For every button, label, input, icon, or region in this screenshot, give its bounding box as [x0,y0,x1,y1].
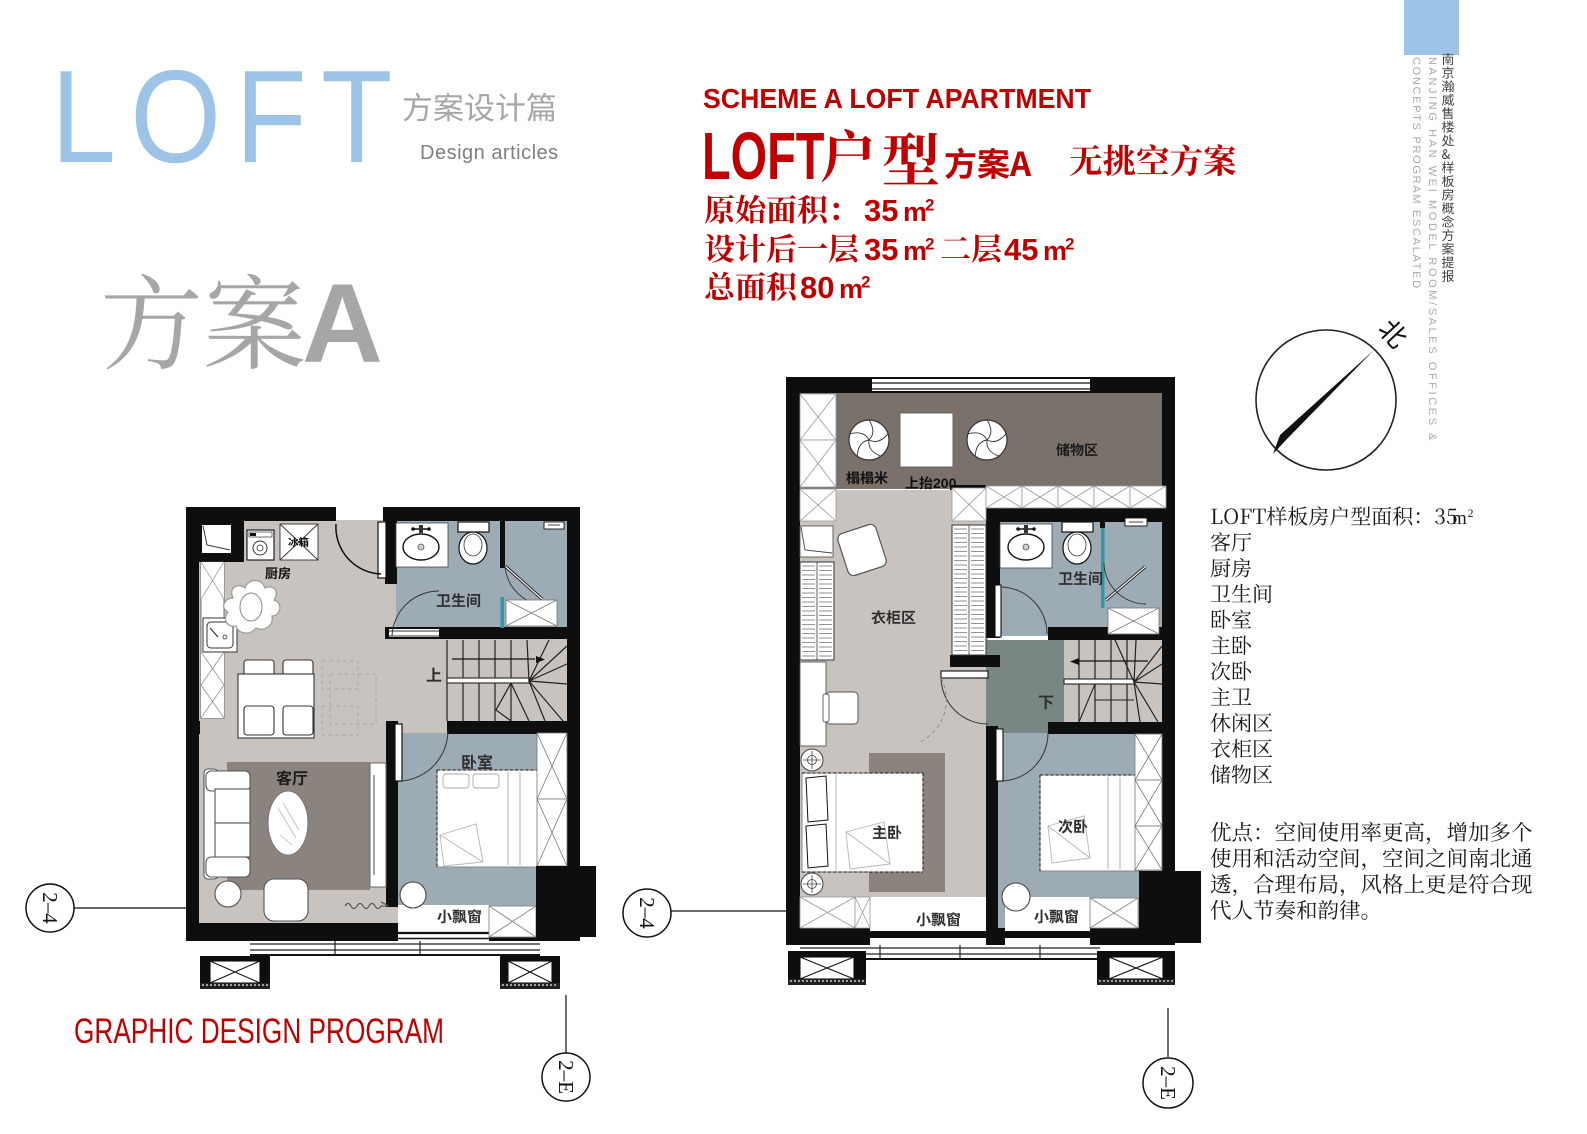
svg-text:CONCEPTS PROGRAM ESCALATED: CONCEPTS PROGRAM ESCALATED [1410,57,1422,290]
svg-text:2: 2 [1065,235,1074,254]
svg-text:m: m [903,236,927,266]
svg-text:A: A [302,261,383,386]
svg-text:2–E: 2–E [554,1060,578,1094]
svg-text:LOFT: LOFT [51,43,407,190]
svg-text:2–4: 2–4 [635,897,659,929]
svg-text:m: m [1043,236,1067,266]
svg-text:2: 2 [925,196,934,215]
svg-text:2: 2 [925,235,934,254]
svg-text:m: m [1452,508,1467,529]
svg-text:NANJING HAN WEI MODEL ROOM/SAL: NANJING HAN WEI MODEL ROOM/SALES OFFICES… [1426,57,1438,443]
svg-text:GRAPHIC DESIGN PROGRAM: GRAPHIC DESIGN PROGRAM [74,1012,444,1051]
svg-text:2–4: 2–4 [38,892,62,924]
svg-text:SCHEME A LOFT APARTMENT: SCHEME A LOFT APARTMENT [703,83,1091,114]
svg-text:2: 2 [1468,507,1474,520]
svg-text:2–E: 2–E [1156,1066,1180,1100]
svg-text:LOFT: LOFT [702,120,824,194]
svg-text:80: 80 [800,270,834,305]
svg-text:2: 2 [861,273,870,292]
svg-text:Design articles: Design articles [420,142,559,164]
svg-text:45: 45 [1004,232,1038,267]
svg-text:35: 35 [864,232,898,267]
svg-text:m: m [903,197,927,227]
svg-text:m: m [839,274,863,304]
svg-text:35: 35 [864,193,898,228]
